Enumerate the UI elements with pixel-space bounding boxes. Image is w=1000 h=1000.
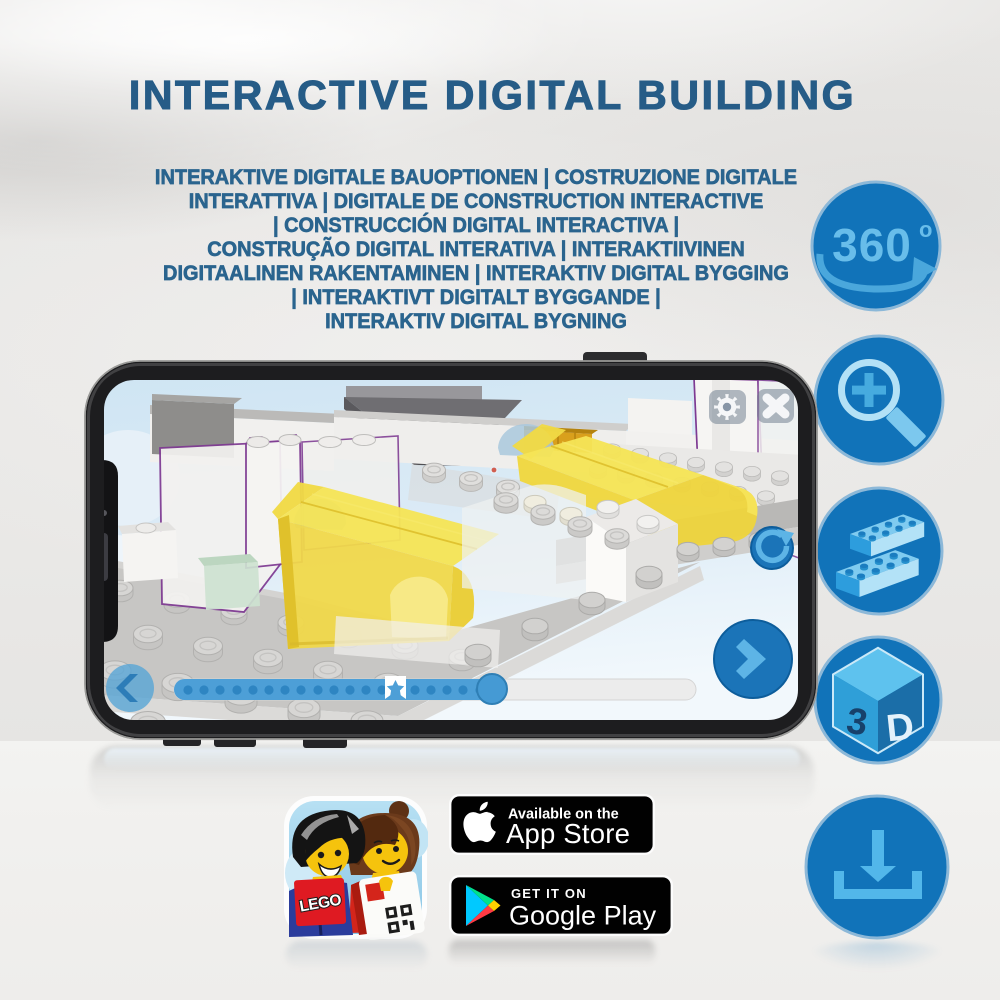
svg-text:Google Play: Google Play [509,901,657,931]
svg-text:App Store: App Store [506,818,630,849]
svg-text:D: D [884,706,916,751]
svg-text:360: 360 [832,219,912,271]
svg-text:o: o [919,217,932,242]
svg-text:GET IT ON: GET IT ON [511,886,587,901]
